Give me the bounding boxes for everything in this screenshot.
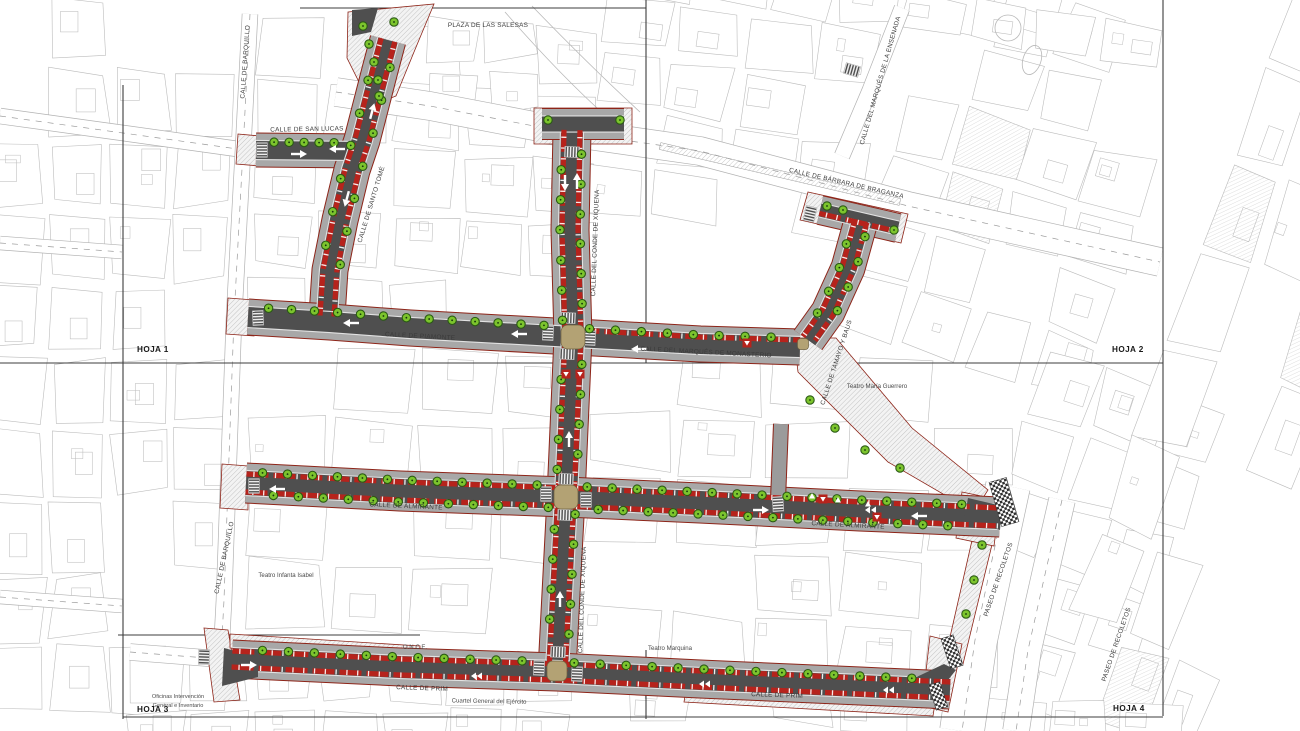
label-hoja-1: HOJA 1 [137, 345, 169, 354]
crosswalk-stripes [257, 143, 268, 158]
label-once: O.N.C.E. [403, 644, 428, 651]
crosswalk-stripes [533, 660, 545, 675]
label-teatro-marquina: Teatro Marquina [648, 645, 693, 652]
yield-mark-icon [576, 370, 585, 379]
yield-mark-icon [873, 513, 882, 522]
building-block-group [246, 15, 604, 343]
label-calle-san-lucas: CALLE DE SAN LUCAS [270, 125, 344, 133]
label-hoja-2: HOJA 2 [1112, 345, 1144, 354]
paved-intersection [554, 485, 578, 509]
cadastral-background [0, 0, 1300, 731]
label-cuartel-general: Cuartel General del Ejército [452, 697, 528, 705]
paved-intersection [547, 661, 567, 681]
crosswalk-stripes [571, 666, 583, 681]
crosswalk-stripes [198, 649, 210, 664]
label-plaza-salesas: PLAZA DE LAS SALESAS [448, 22, 528, 29]
yield-mark-icon [819, 495, 828, 504]
urban-plan-map: PLAZA DE LAS SALESAS CALLE DE BARQUILLO … [0, 0, 1300, 731]
label-hoja-4: HOJA 4 [1113, 704, 1145, 713]
crosswalk-stripes [581, 493, 592, 508]
crosswalk-stripes [772, 496, 784, 512]
crosswalk-stripes [557, 509, 572, 521]
paved-intersection [798, 339, 809, 350]
label-hoja-3: HOJA 3 [137, 705, 169, 714]
crosswalk-stripes [558, 473, 573, 485]
yield-mark-icon [743, 339, 752, 348]
crosswalk-stripes [559, 348, 574, 360]
crosswalk-stripes [541, 487, 552, 502]
paved-intersection [561, 325, 585, 349]
label-teatro-infanta-isabel: Teatro Infanta Isabel [258, 572, 313, 579]
crosswalk-stripes [252, 310, 264, 325]
yield-mark-icon [562, 370, 571, 379]
crosswalk-stripes [550, 646, 565, 658]
crosswalk-stripes [249, 479, 260, 494]
label-oficinas-line1: Oficinas Intervención [152, 694, 204, 700]
map-canvas: PLAZA DE LAS SALESAS CALLE DE BARQUILLO … [0, 0, 1300, 731]
label-teatro-maria-guerrero: Teatro María Guerrero [847, 383, 908, 390]
